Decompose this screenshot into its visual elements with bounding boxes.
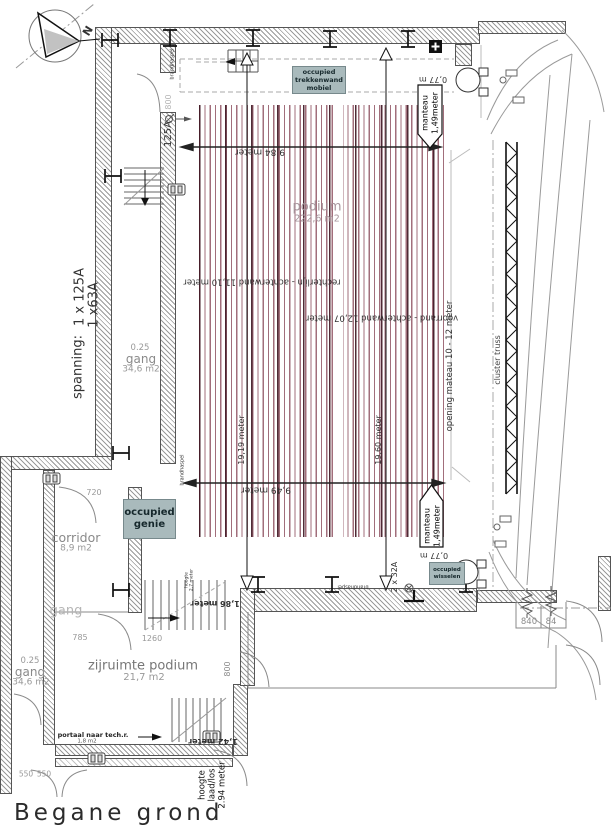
drawing-title: Begane grond [14,800,223,826]
cluster-truss-label: cluster truss [494,335,502,385]
brandhaspel-bottom: brandhaspel [337,584,368,589]
room-gang-low-area: 34,6 m2 [12,679,49,688]
a2x32-label: 2 x 32A [391,562,399,593]
occupied-wisselen-box: occupied wisselen [429,562,465,585]
manteau-bottom-label: manteau 1,49meter [422,505,441,547]
occupied-trekkenwand-box: occupied trekkenwand mobiel [292,66,346,94]
dim-720: 720 [86,489,101,497]
room-gang-low: gang [15,666,45,678]
dim-depth-right: 19,60 meter [375,415,383,465]
a125-label: 125A [164,121,174,147]
room-corridor: corridor [52,532,101,545]
dim-vertical-left [241,53,253,590]
dim-550-a: 550 [19,770,33,778]
stairs-top-left [124,168,164,206]
dim-186: 1,86 meter [190,599,239,607]
proscenium-columns [454,68,488,588]
dim-voorrand: voorrand - achterwand 12,07 meter [306,313,458,322]
ibeam-columns-top [163,30,415,47]
manteau-line2: 1,49meter [430,92,440,134]
dim-800-bottom: 800 [224,661,232,676]
occupied-genie-box: occupied genie [123,499,176,539]
dim-width-bottom: 9,49 meter [241,485,291,494]
room-portaal-area: 1,8 m2 [77,739,96,745]
dim-84: 84 [546,618,557,627]
room-gang-small: gang [50,605,83,618]
cluster-truss [506,142,517,494]
manteau-width-top: 0,77 m [419,75,447,83]
floor-plan: N 9,84 meter 9,49 meter 19,19 meter 19,6… [0,0,611,830]
hoogte27-line2: 2,7 meter [190,569,195,591]
dim-142: 1,42 meter [188,737,237,745]
dim-785: 785 [72,634,87,642]
occ-line: occupied [303,68,336,76]
brandhaspel-left: brandhaspel [181,454,186,485]
dim-1260: 1260 [142,635,162,643]
room-gang-mid: gang [126,353,156,365]
brandhaspel-top: brandhaspel [171,48,176,79]
room-zijruimte: zijruimte podium [88,660,198,673]
spanning-label: spanning: [72,335,85,399]
occ-line: occupied [124,507,174,520]
occ-line: wisselen [434,574,461,581]
room-podium-area: 222,6 m2 [294,214,340,224]
dim-840: 840 [521,618,537,627]
dim-800-top: 800 [165,94,173,109]
amps-125-label: 1 x 125A [74,268,87,326]
manteau-line1: manteau [420,92,430,134]
room-podium: podium [293,201,342,214]
dim-rechterlijn: rechterlijn - achterwand 11,10 meter [183,277,340,286]
electrical-symbols [165,114,424,601]
room-zijruimte-area: 21,7 m2 [123,673,165,683]
linework [0,0,611,830]
manteau-line1: manteau [422,505,432,547]
manteau-top-label: manteau 1,49meter [420,92,439,134]
manteau-width-bottom: 0,77 m [420,551,448,559]
dim-depth-left: 19,19 meter [238,415,246,465]
room-gang-mid-ratio: 0.25 [131,344,150,353]
dim-horizontal-bottom [184,480,444,487]
manteau-line2: 1,49meter [432,505,442,547]
dim-width-top: 9,84 meter [235,147,285,156]
occ-line: occupied [433,567,461,574]
auditorium-curves [487,30,604,700]
room-gang-mid-area: 34,6 m2 [122,366,159,375]
occ-line: trekkenwand [295,76,343,84]
hoogte-27-label: hoogte 2,7 meter [185,569,196,591]
dim-horizontal-top [181,144,441,151]
room-corridor-area: 8,9 m2 [60,545,92,554]
dim-550-b: 550 [37,770,51,778]
room-gang-low-ratio: 0.25 [21,657,40,666]
occ-line: mobiel [307,84,332,92]
occ-line: genie [134,519,165,532]
top-stair-grid [225,50,258,72]
amps-63-label: 1 x63A [88,282,101,328]
plus-marker-icon [429,40,442,53]
dim-opening-manteau: opening mateau 10 - 12 meter [446,301,455,432]
